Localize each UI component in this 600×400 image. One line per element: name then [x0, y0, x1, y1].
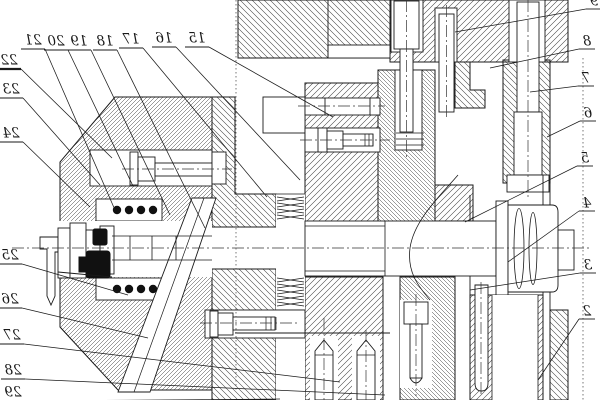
callout-number-20: 20	[47, 34, 66, 50]
main-shaft	[305, 221, 496, 276]
callout-leader-6	[547, 121, 580, 137]
callout-number-15: 15	[188, 31, 205, 47]
callout-number-17: 17	[122, 32, 140, 48]
section-drawing: 15161718192021222324252627282998765432	[0, 0, 600, 400]
callout-29: 29	[4, 385, 23, 400]
callout-16: 16	[155, 31, 173, 47]
callout-number-22: 22	[0, 53, 18, 69]
callout-19: 19	[70, 34, 88, 50]
callout-number-4: 4	[583, 196, 593, 212]
plate-notch	[328, 45, 390, 58]
spring-cavity	[276, 194, 305, 400]
callout-number-2: 2	[583, 304, 593, 320]
callout-15: 15	[188, 31, 205, 47]
pin-bore-bottom-right	[492, 295, 538, 400]
bolt-shank-lower	[233, 317, 275, 330]
callout-23: 23	[2, 82, 20, 98]
callout-9: 9	[589, 0, 598, 10]
callout-25: 25	[1, 248, 19, 264]
callout-18: 18	[96, 34, 114, 50]
callout-28: 28	[4, 363, 23, 379]
callout-number-5: 5	[581, 151, 590, 167]
right-edge-block	[550, 310, 568, 400]
callout-number-7: 7	[581, 71, 590, 87]
callout-number-19: 19	[70, 34, 88, 50]
callout-3: 3	[584, 258, 593, 274]
callout-number-8: 8	[582, 34, 591, 50]
callout-20: 20	[47, 34, 66, 50]
callout-22: 22	[0, 53, 18, 69]
callout-24: 24	[2, 126, 20, 142]
callout-number-27: 27	[3, 328, 22, 344]
callout-8: 8	[582, 34, 591, 50]
thin-pin	[475, 285, 488, 391]
callout-27: 27	[3, 328, 22, 344]
callout-number-23: 23	[2, 82, 20, 98]
technical-drawing-page: 15161718192021222324252627282998765432	[0, 0, 600, 400]
callout-number-6: 6	[583, 106, 592, 122]
step-block	[435, 185, 473, 221]
spring-seat	[263, 97, 305, 133]
callout-21: 21	[24, 33, 42, 49]
callout-26: 26	[1, 292, 20, 308]
side-hole	[305, 98, 380, 115]
callout-number-21: 21	[24, 33, 42, 49]
seal-ring-side	[79, 257, 86, 272]
washer-lower	[210, 311, 218, 337]
callout-number-26: 26	[1, 292, 20, 308]
callout-6: 6	[583, 106, 592, 122]
callout-5: 5	[581, 151, 590, 167]
callout-17: 17	[122, 32, 140, 48]
callout-7: 7	[581, 71, 590, 87]
bolt-shank-left	[155, 163, 215, 176]
callout-number-18: 18	[96, 34, 114, 50]
seal-ring-small	[93, 229, 107, 245]
callout-number-3: 3	[584, 258, 593, 274]
washer-left	[130, 152, 138, 185]
callout-4: 4	[583, 196, 593, 212]
nozzle-step1	[58, 228, 70, 278]
seal-ring-large	[86, 251, 110, 278]
l-bracket	[40, 237, 58, 305]
callout-2: 2	[583, 304, 593, 320]
bolt-head-lower	[218, 313, 233, 335]
callout-number-29: 29	[4, 385, 23, 400]
callout-number-16: 16	[155, 31, 173, 47]
callout-number-9: 9	[589, 0, 598, 10]
callout-number-28: 28	[4, 363, 23, 379]
shaft-end-stub	[558, 230, 574, 270]
right-rib	[455, 62, 485, 108]
callout-number-24: 24	[2, 126, 20, 142]
callout-number-25: 25	[1, 248, 19, 264]
insert-nut	[212, 152, 226, 184]
